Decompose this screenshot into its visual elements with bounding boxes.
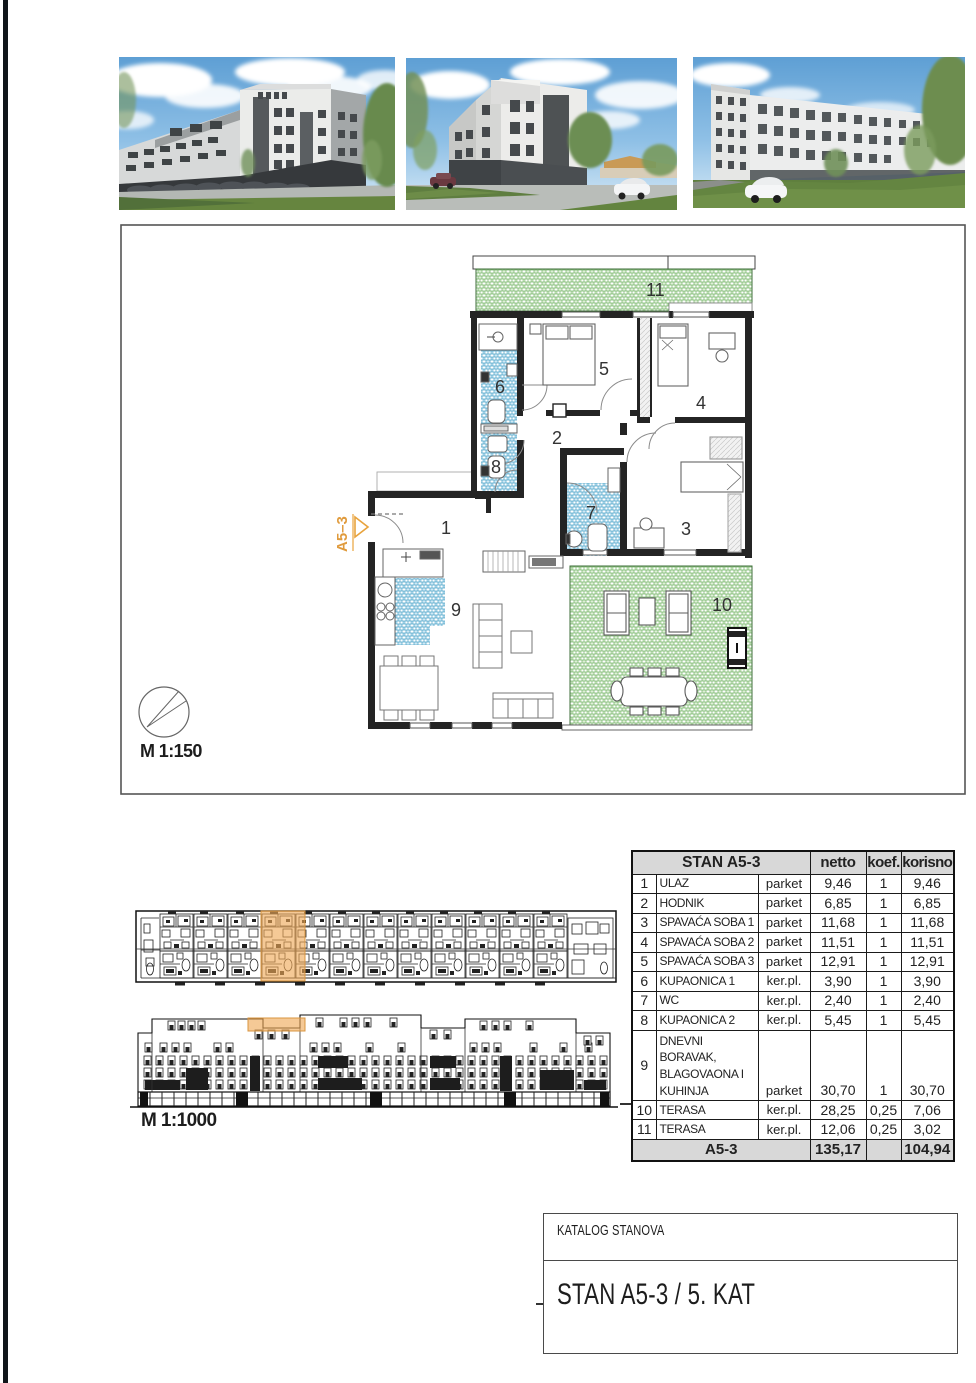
- svg-text:6: 6: [495, 377, 505, 397]
- svg-text:5: 5: [599, 359, 609, 379]
- svg-text:11: 11: [646, 280, 665, 300]
- svg-text:2: 2: [552, 428, 562, 448]
- svg-text:M 1:150: M 1:150: [140, 741, 202, 761]
- svg-text:9: 9: [451, 600, 461, 620]
- svg-text:M 1:1000: M 1:1000: [141, 1110, 217, 1131]
- svg-text:3: 3: [681, 519, 691, 539]
- svg-text:7: 7: [586, 503, 596, 523]
- svg-text:A5–3: A5–3: [334, 516, 351, 552]
- svg-text:10: 10: [712, 595, 732, 615]
- svg-text:1: 1: [441, 518, 451, 538]
- svg-text:4: 4: [696, 393, 706, 413]
- svg-text:8: 8: [491, 457, 501, 477]
